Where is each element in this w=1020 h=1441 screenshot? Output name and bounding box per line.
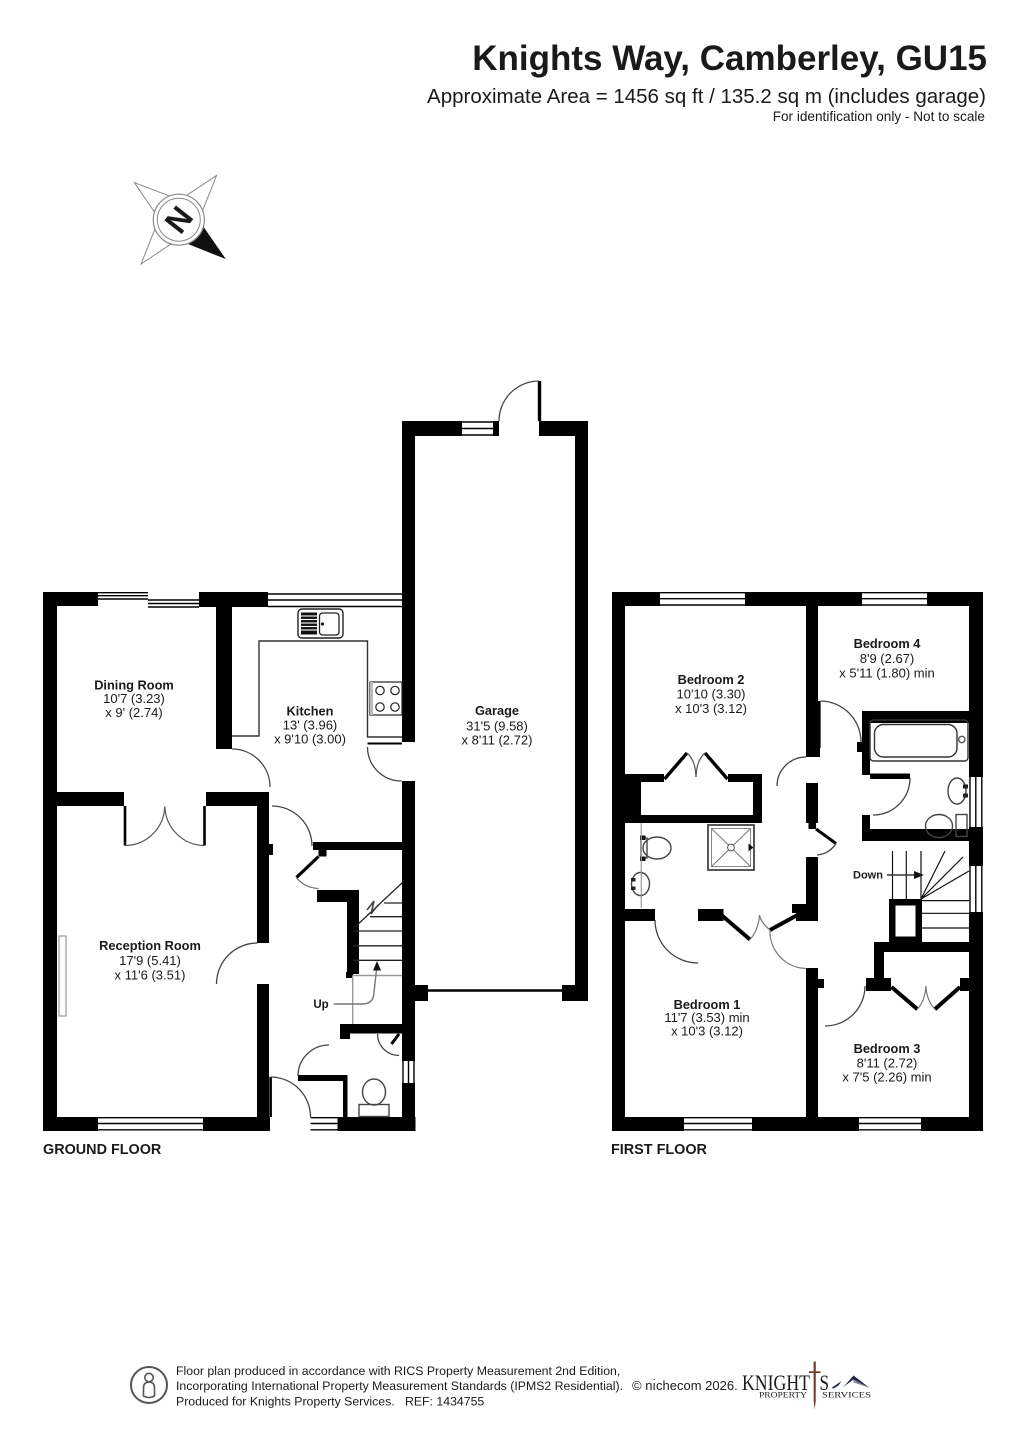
svg-text:Up: Up — [313, 999, 328, 1011]
svg-text:17'9 (5.41): 17'9 (5.41) — [119, 953, 181, 968]
svg-text:x 9' (2.74): x 9' (2.74) — [105, 705, 162, 720]
svg-text:© nı̇checom 2026.: © nı̇checom 2026. — [632, 1378, 738, 1393]
svg-text:10'7 (3.23): 10'7 (3.23) — [103, 691, 165, 706]
svg-text:For identification only - Not: For identification only - Not to scale — [773, 109, 985, 124]
svg-text:x 9'10 (3.00): x 9'10 (3.00) — [274, 732, 346, 747]
svg-text:Down: Down — [853, 870, 883, 882]
svg-text:Reception Room: Reception Room — [99, 938, 201, 953]
svg-text:x 7'5 (2.26) min: x 7'5 (2.26) min — [842, 1070, 931, 1085]
svg-text:Garage: Garage — [475, 703, 519, 718]
svg-text:x 5'11 (1.80) min: x 5'11 (1.80) min — [839, 666, 934, 681]
svg-text:13' (3.96): 13' (3.96) — [283, 718, 338, 733]
svg-text:Kitchen: Kitchen — [287, 704, 334, 719]
svg-text:x 11'6 (3.51): x 11'6 (3.51) — [115, 968, 186, 983]
svg-text:SERVICES: SERVICES — [822, 1391, 871, 1400]
svg-text:Bedroom 4: Bedroom 4 — [854, 636, 922, 651]
svg-text:x 10'3 (3.12): x 10'3 (3.12) — [671, 1024, 743, 1039]
svg-text:Incorporating International Pr: Incorporating International Property Mea… — [176, 1379, 623, 1393]
svg-text:FIRST FLOOR: FIRST FLOOR — [611, 1142, 708, 1158]
svg-text:8'9 (2.67): 8'9 (2.67) — [860, 651, 915, 666]
svg-text:Bedroom 3: Bedroom 3 — [854, 1041, 921, 1056]
svg-text:x 8'11 (2.72): x 8'11 (2.72) — [462, 733, 533, 748]
svg-text:PROPERTY: PROPERTY — [759, 1391, 807, 1400]
svg-text:Floor plan produced in accorda: Floor plan produced in accordance with R… — [176, 1364, 620, 1378]
svg-text:Knights Way, Camberley, GU15: Knights Way, Camberley, GU15 — [472, 39, 987, 78]
svg-text:31'5 (9.58): 31'5 (9.58) — [466, 719, 528, 734]
svg-text:8'11 (2.72): 8'11 (2.72) — [857, 1056, 918, 1071]
svg-text:10'10 (3.30): 10'10 (3.30) — [677, 687, 746, 702]
svg-text:Bedroom 2: Bedroom 2 — [678, 672, 745, 687]
svg-text:x 10'3 (3.12): x 10'3 (3.12) — [675, 701, 747, 716]
svg-text:Approximate Area = 1456 sq ft: Approximate Area = 1456 sq ft / 135.2 sq… — [427, 85, 986, 108]
svg-text:GROUND FLOOR: GROUND FLOOR — [43, 1142, 162, 1158]
svg-text:Produced for Knights Property: Produced for Knights Property Services. … — [176, 1395, 484, 1409]
